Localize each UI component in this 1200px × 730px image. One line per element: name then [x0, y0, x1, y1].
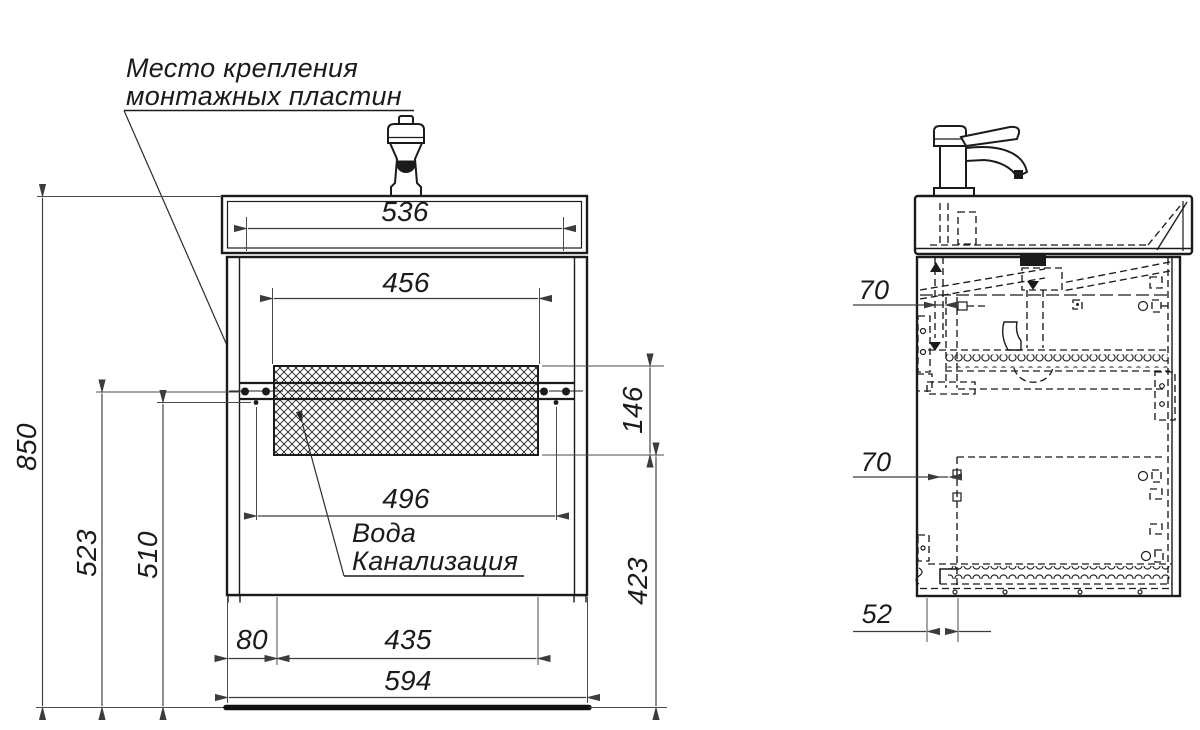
dim-label-plate-height-inner: 510 — [132, 531, 163, 579]
dim-label-plate-height-outer: 523 — [71, 529, 102, 577]
dim-label-side-bottom-inset: 70 — [861, 447, 892, 477]
dim-back-offset: 52 — [853, 598, 991, 642]
utilities-line-1: Вода — [352, 518, 416, 548]
dim-label-opening-width: 456 — [382, 267, 430, 298]
sink-top-side — [915, 196, 1192, 254]
utilities-line-2: Канализация — [352, 546, 518, 576]
dim-label-total-height: 850 — [11, 423, 42, 471]
dim-label-back-offset: 52 — [862, 599, 893, 629]
side-view: 70 70 52 — [853, 126, 1192, 642]
technical-drawing-page: Место крепления монтажных пластин — [0, 0, 1200, 730]
dim-total-height: 850 — [11, 197, 222, 707]
faucet-side — [934, 126, 1027, 196]
drain-outlet — [1020, 255, 1046, 266]
dim-label-under-cabinet-height: 423 — [622, 557, 653, 605]
faucet-front — [388, 116, 424, 197]
dim-under-cabinet-height: 423 — [622, 457, 656, 707]
note-line-1: Место крепления — [126, 53, 358, 83]
cabinet-feet — [228, 596, 586, 603]
note-line-2: монтажных пластин — [126, 81, 402, 111]
drawer-slide-upper — [946, 355, 1168, 368]
dim-label-service-zone-height: 146 — [617, 386, 648, 434]
dim-label-service-zone-width: 435 — [384, 624, 432, 655]
vanity-installation-drawing: Место крепления монтажных пластин — [0, 0, 1200, 730]
service-zone-hatch — [274, 366, 538, 455]
faucet-lever — [961, 127, 1019, 146]
drawer-slide-lower — [948, 566, 1170, 579]
dim-bottom-chain: 80 435 594 — [228, 597, 588, 703]
front-view: Место крепления монтажных пластин — [11, 53, 667, 708]
dim-label-sink-top-width: 536 — [381, 196, 429, 227]
dim-label-overall-width: 594 — [384, 665, 432, 696]
dim-label-side-top-inset: 70 — [859, 275, 890, 305]
dim-label-plate-span: 496 — [382, 483, 430, 514]
dim-label-left-offset: 80 — [236, 624, 268, 655]
